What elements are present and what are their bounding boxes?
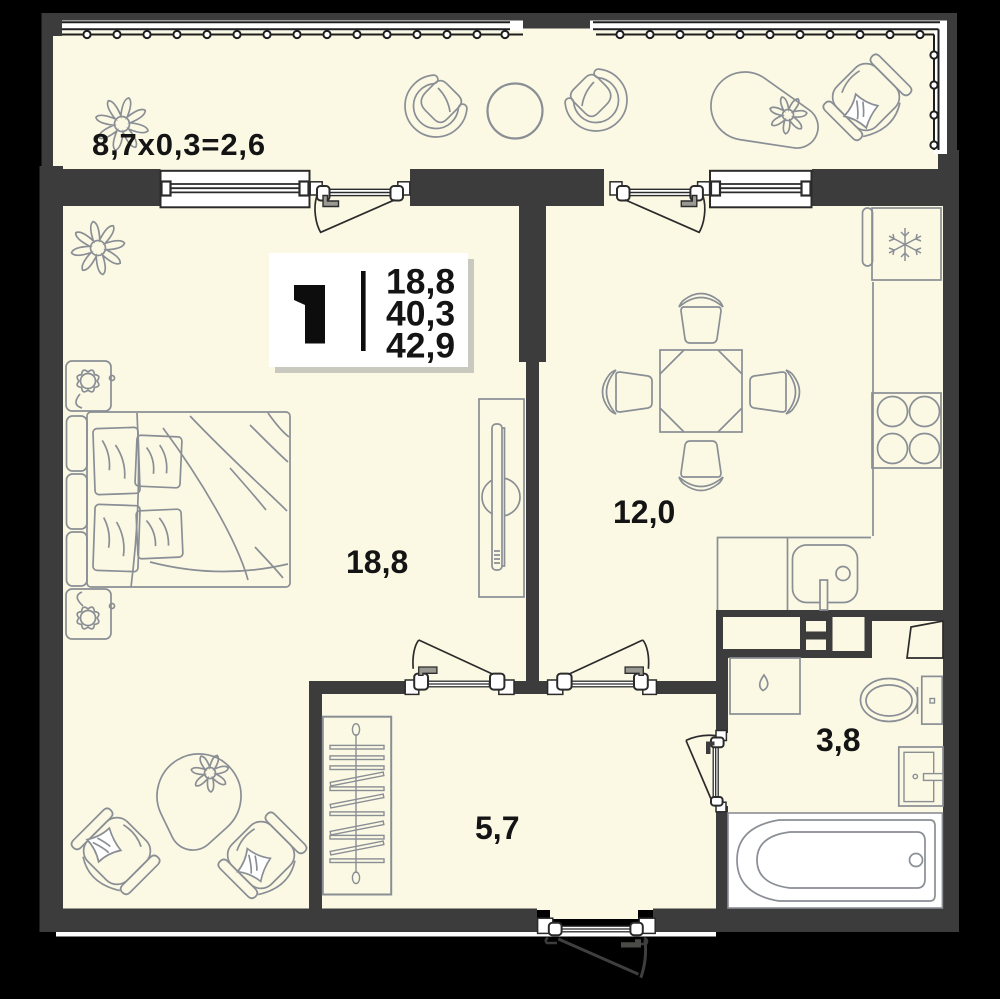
svg-text:3,8: 3,8 (816, 722, 860, 758)
svg-text:8,7x0,3=2,6: 8,7x0,3=2,6 (92, 127, 266, 162)
svg-text:42,9: 42,9 (386, 326, 455, 366)
svg-text:18,8: 18,8 (346, 544, 408, 580)
svg-text:5,7: 5,7 (475, 810, 519, 846)
svg-text:12,0: 12,0 (613, 494, 675, 530)
